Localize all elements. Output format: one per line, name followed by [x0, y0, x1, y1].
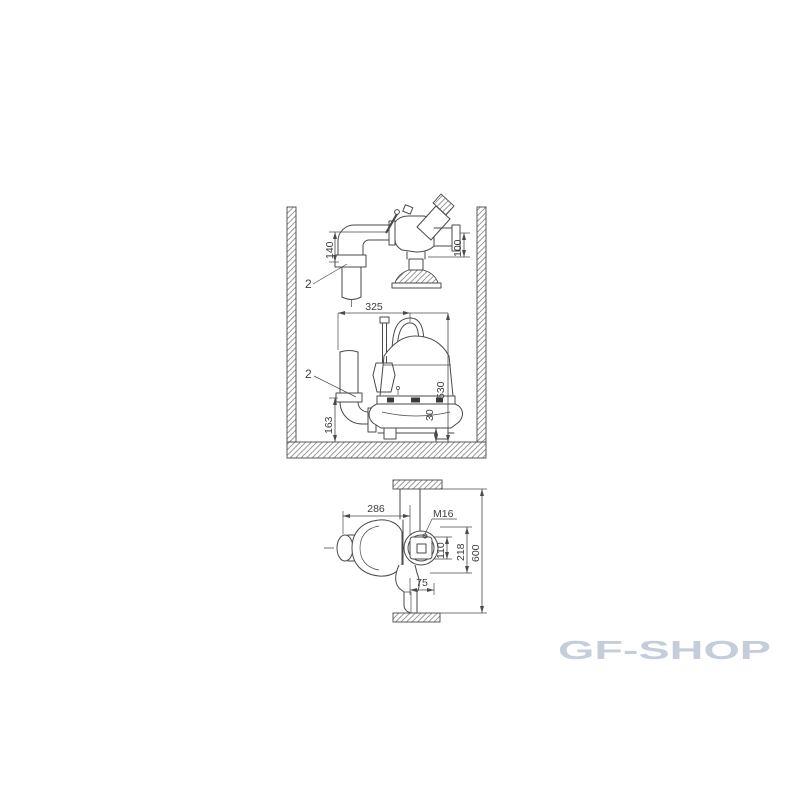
dim-286-label: 286 — [367, 503, 385, 515]
guide-square-inner — [417, 544, 426, 553]
riser-union-sleeve — [336, 393, 362, 402]
plan-top-wall-hatch — [393, 480, 442, 489]
m16-label: M16 — [433, 508, 454, 520]
dim-218-label: 218 — [455, 543, 467, 561]
pedestal-plate — [392, 283, 441, 288]
technical-drawing-canvas: 140 100 2 — [0, 0, 800, 800]
pedestal-stem — [409, 259, 423, 270]
dim-140-label: 140 — [324, 241, 336, 259]
pit-left-wall-hatch — [287, 207, 296, 442]
figure-pump-plan-view: 286 M16 110 218 600 75 — [324, 480, 487, 622]
dim-100-label: 100 — [452, 239, 464, 257]
cable-gland — [373, 363, 395, 392]
volute-plan — [352, 520, 402, 576]
plan-bottom-wall-hatch — [393, 613, 440, 622]
figure-piping-side-view: 140 100 2 — [305, 194, 470, 307]
dim-600-label: 600 — [470, 544, 482, 562]
pump-foot-left — [384, 428, 396, 439]
dim-110-label: 110 — [435, 542, 447, 559]
discharge-pipe-end — [337, 535, 353, 561]
dim-530-label: 530 — [435, 381, 447, 399]
pump-body — [369, 317, 462, 439]
pedestal-base — [395, 270, 438, 283]
cable-top — [380, 317, 389, 323]
label-m16: M16 — [425, 508, 457, 534]
watermark-text: GF-SHOP — [558, 635, 771, 665]
dim-75-label: 75 — [416, 577, 428, 589]
callout-2-middle-label: 2 — [305, 367, 312, 381]
pump-foot-right — [436, 428, 448, 439]
pump-plan-body — [337, 520, 438, 613]
pit-floor-hatch — [287, 442, 486, 458]
pipe-union-sleeve — [335, 255, 366, 267]
clamp-knob — [403, 205, 413, 214]
valve-assembly — [386, 194, 460, 288]
dim-30-label: 30 — [424, 409, 436, 421]
dim-325-label: 325 — [365, 301, 383, 313]
dim-163: 163 — [323, 398, 338, 442]
pit-right-wall-hatch — [477, 207, 486, 442]
dim-163-label: 163 — [323, 416, 335, 434]
figure-pump-side-view: 325 530 163 30 2 — [305, 301, 462, 442]
guide-claw — [396, 565, 420, 613]
callout-2-top: 2 — [305, 264, 347, 291]
callout-2-top-label: 2 — [305, 277, 312, 291]
